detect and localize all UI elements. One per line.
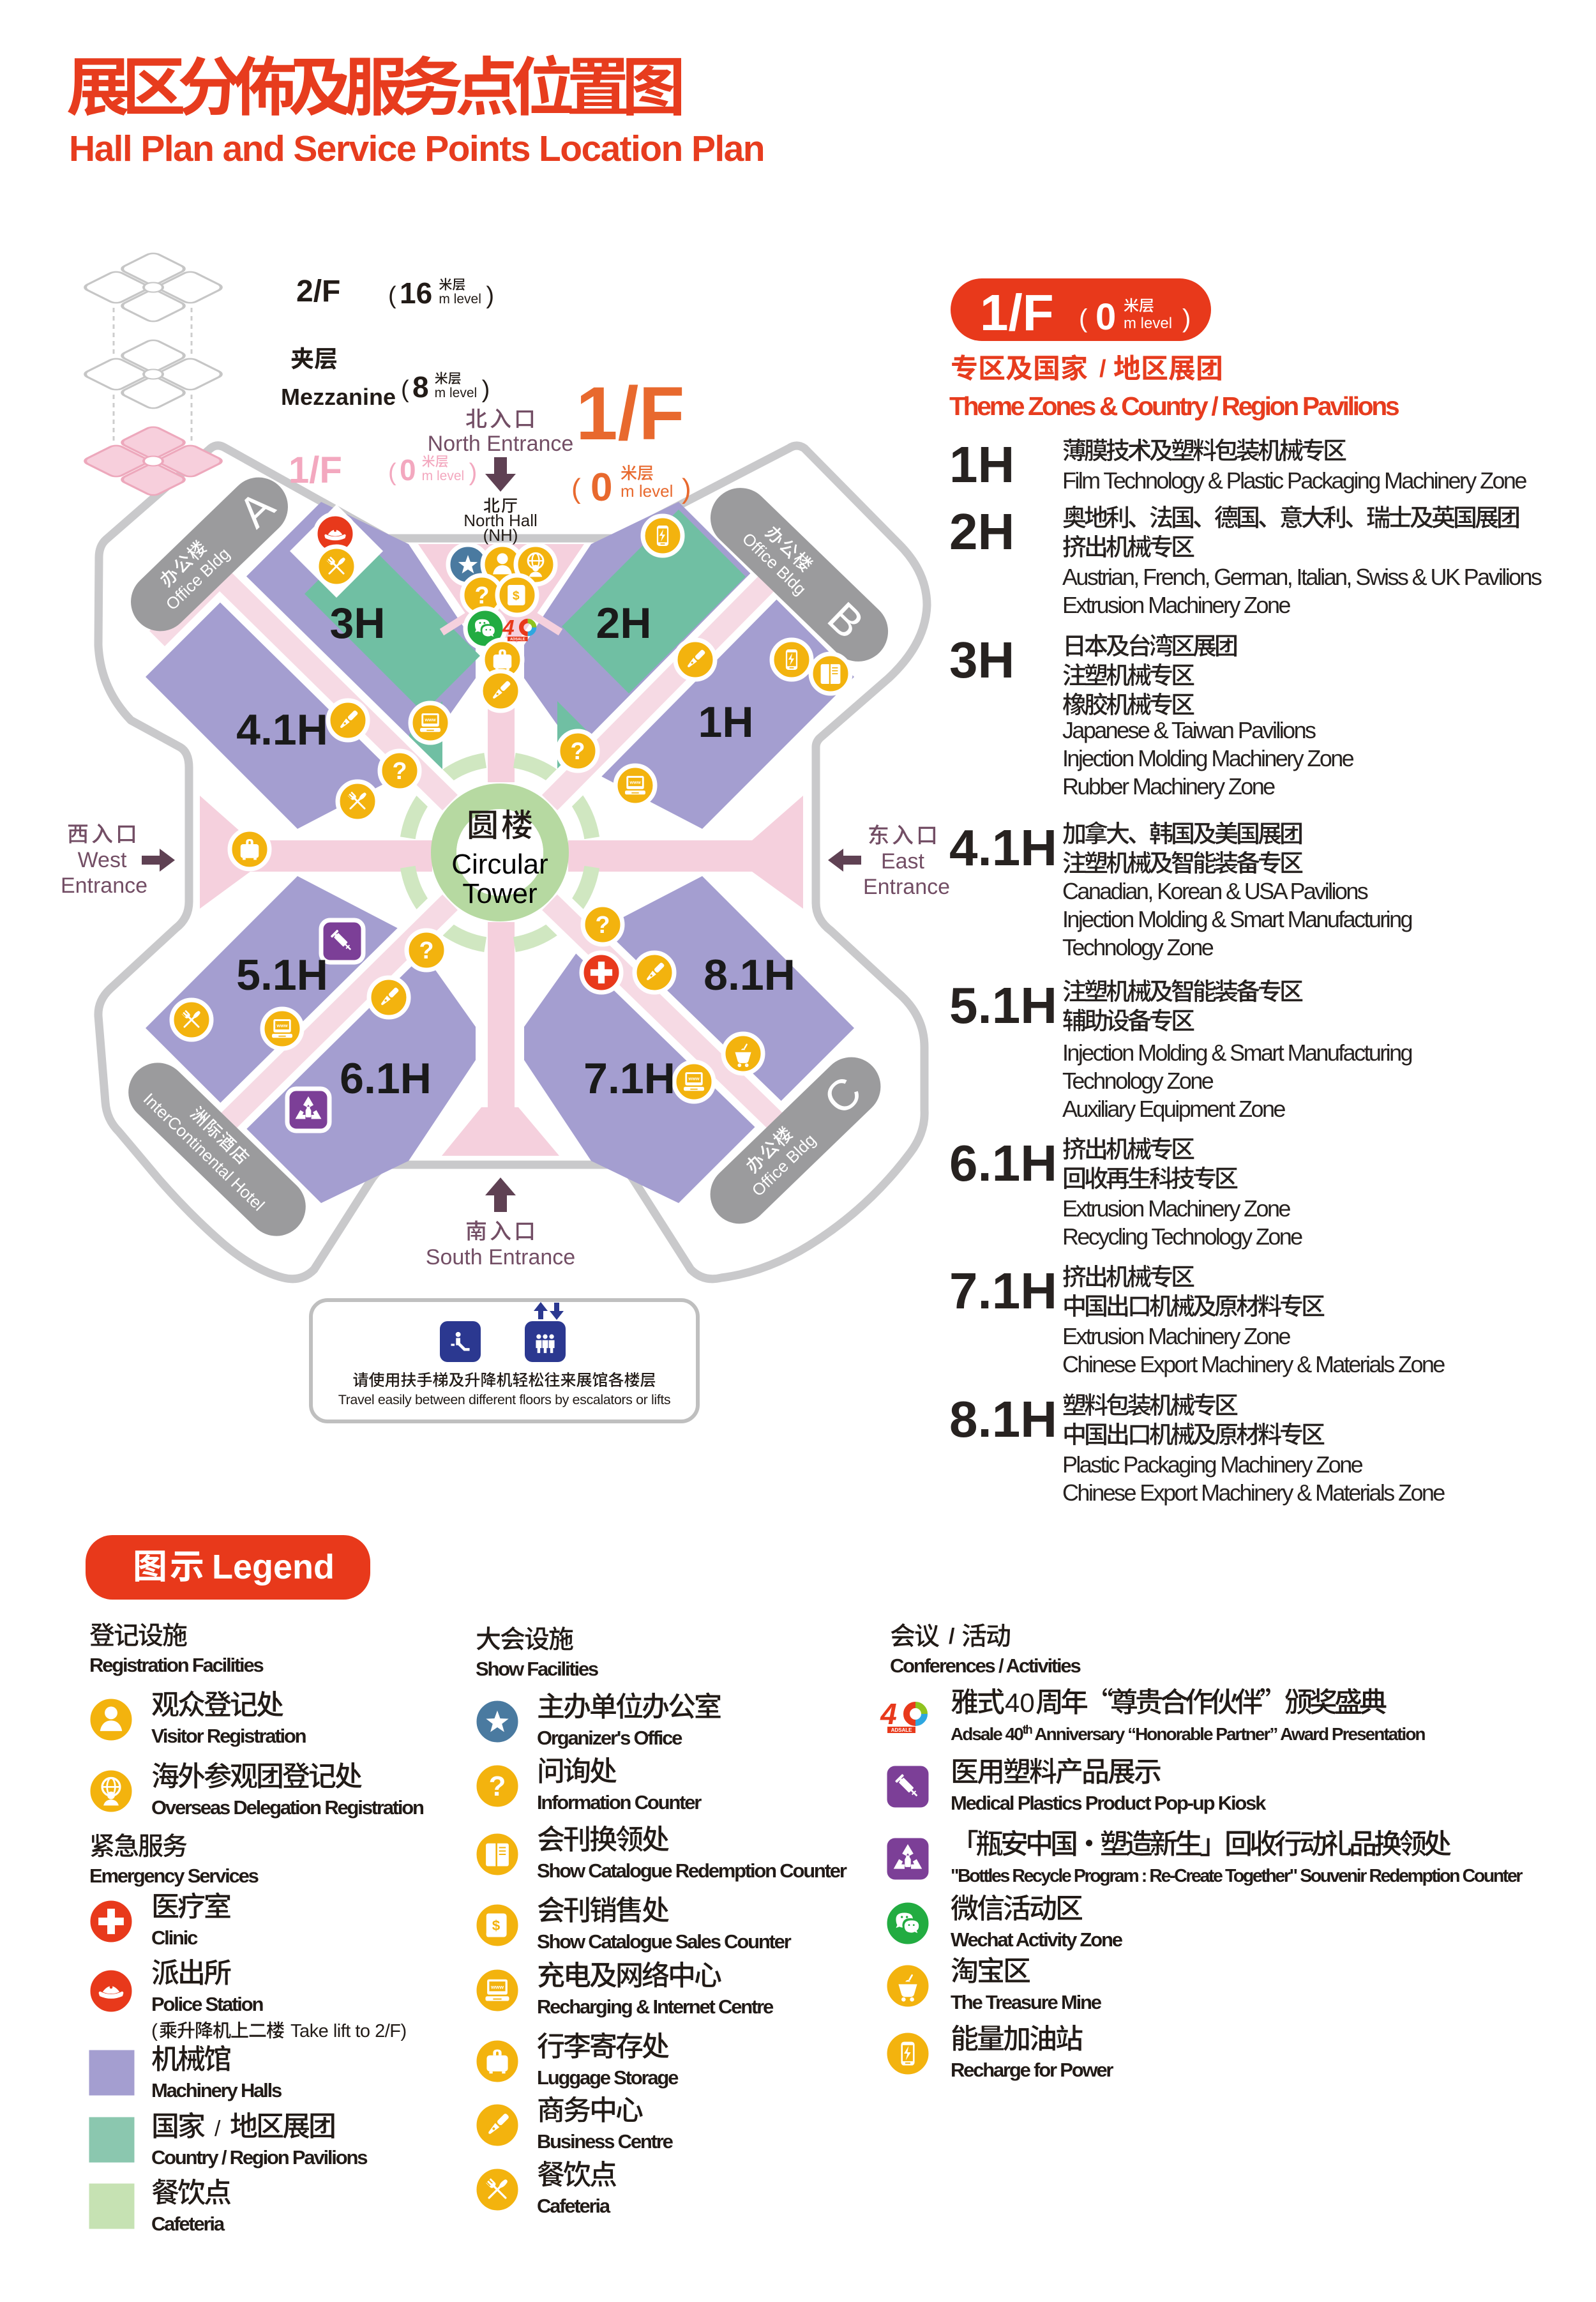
svg-text:Rubber Machinery Zone: Rubber Machinery Zone [1062, 773, 1275, 799]
svg-text:): ) [682, 473, 691, 504]
svg-text:Machinery Halls: Machinery Halls [151, 2079, 282, 2101]
svg-text:Take lift to 2/F): Take lift to 2/F) [290, 2021, 407, 2041]
svg-text:Police Station: Police Station [151, 1993, 263, 2015]
svg-text:8.1H: 8.1H [949, 1391, 1057, 1448]
svg-text:Cafeteria: Cafeteria [151, 2213, 225, 2235]
svg-text:Organizer's Office: Organizer's Office [537, 1727, 682, 1749]
svg-text:7.1H: 7.1H [949, 1262, 1057, 1319]
svg-text:/: / [949, 1624, 955, 1649]
svg-text:4.1H: 4.1H [949, 819, 1057, 876]
svg-text:0: 0 [1095, 296, 1116, 338]
svg-text:Injection Molding & Smart Manu: Injection Molding & Smart Manufacturing [1062, 1040, 1412, 1066]
svg-text:North Entrance: North Entrance [428, 432, 574, 456]
svg-text:Auxiliary Equipment Zone: Auxiliary Equipment Zone [1062, 1096, 1285, 1122]
svg-text:Country / Region Pavilions: Country / Region Pavilions [151, 2146, 367, 2169]
svg-text:m level: m level [621, 481, 673, 501]
svg-text:2/F: 2/F [296, 275, 340, 308]
svg-text:Adsale 40th Anniversary “Honor: Adsale 40th Anniversary “Honorable Partn… [951, 1723, 1425, 1744]
svg-text:Mezzanine: Mezzanine [281, 384, 396, 410]
svg-text:0: 0 [400, 453, 416, 487]
svg-text:Film Technology & Plastic Pack: Film Technology & Plastic Packaging Mach… [1062, 467, 1526, 494]
svg-text:Austrian, French, German, Ital: Austrian, French, German, Italian, Swiss… [1062, 564, 1542, 590]
svg-text:(NH): (NH) [483, 526, 518, 545]
svg-text:2H: 2H [596, 599, 652, 647]
svg-text:4: 4 [502, 616, 514, 640]
svg-text:m level: m level [1124, 315, 1172, 332]
svg-text:Entrance: Entrance [863, 875, 950, 899]
svg-text:/: / [1099, 356, 1106, 382]
svg-text:Chinese Export Machinery & Mat: Chinese Export Machinery & Materials Zon… [1062, 1351, 1445, 1377]
svg-text:(: ( [388, 282, 396, 309]
svg-text:Recharging & Internet Centre: Recharging & Internet Centre [537, 1995, 774, 2018]
svg-text:4: 4 [880, 1697, 897, 1730]
svg-text:7.1H: 7.1H [583, 1054, 675, 1103]
svg-text:(: ( [571, 473, 581, 504]
svg-text:Extrusion Machinery Zone: Extrusion Machinery Zone [1062, 1323, 1290, 1349]
svg-text:Theme Zones & Country / Region: Theme Zones & Country / Region Pavilions [949, 391, 1399, 421]
svg-text:West: West [78, 848, 127, 872]
svg-text:): ) [469, 459, 478, 486]
svg-text:Plastic Packaging Machinery Zo: Plastic Packaging Machinery Zone [1062, 1451, 1363, 1478]
svg-text:3H: 3H [330, 599, 386, 647]
svg-text:Visitor Registration: Visitor Registration [151, 1725, 306, 1747]
svg-text:Travel easily between differen: Travel easily between different floors b… [338, 1392, 671, 1407]
svg-text:1/F: 1/F [289, 450, 342, 491]
svg-text:Hall Plan and Service Points L: Hall Plan and Service Points Location Pl… [69, 128, 764, 169]
svg-text:Extrusion Machinery Zone: Extrusion Machinery Zone [1062, 1195, 1290, 1222]
svg-text:Injection Molding Machinery Zo: Injection Molding Machinery Zone [1062, 745, 1354, 771]
svg-text:ADSALE: ADSALE [510, 638, 525, 642]
svg-text:Cafeteria: Cafeteria [537, 2195, 611, 2217]
svg-text:4.1H: 4.1H [236, 706, 328, 754]
svg-text:East: East [881, 849, 925, 874]
svg-text:Technology Zone: Technology Zone [1062, 934, 1214, 960]
svg-text:): ) [486, 282, 494, 309]
svg-text:m level: m level [439, 292, 481, 307]
svg-text:Business Centre: Business Centre [537, 2130, 674, 2153]
svg-text:Show Facilities: Show Facilities [476, 1658, 598, 1680]
svg-text:1H: 1H [949, 436, 1014, 493]
svg-text:The Treasure Mine: The Treasure Mine [951, 1991, 1102, 2013]
svg-text:(: ( [151, 2020, 158, 2041]
svg-text:Emergency Services: Emergency Services [89, 1865, 259, 1887]
svg-text:South Entrance: South Entrance [426, 1245, 575, 1269]
svg-text:/: / [215, 2117, 221, 2141]
svg-text:"Bottles Recycle Program : Re-: "Bottles Recycle Program : Re-Create Tog… [951, 1866, 1523, 1886]
svg-text:(: ( [1079, 305, 1088, 333]
svg-text:Registration Facilities: Registration Facilities [89, 1654, 263, 1676]
svg-text:(: ( [388, 459, 396, 486]
svg-text:Tower: Tower [462, 878, 537, 909]
svg-text:m level: m level [422, 469, 465, 483]
svg-text:Show Catalogue Sales Counter: Show Catalogue Sales Counter [537, 1930, 792, 1953]
svg-text:Recharge for Power: Recharge for Power [951, 2059, 1113, 2081]
svg-text:5.1H: 5.1H [236, 951, 328, 999]
svg-text:Medical Plastics Product Pop-u: Medical Plastics Product Pop-up Kiosk [951, 1792, 1267, 1814]
svg-text:): ) [482, 376, 490, 403]
svg-text:6.1H: 6.1H [949, 1135, 1057, 1192]
svg-text:Wechat Activity Zone: Wechat Activity Zone [951, 1928, 1123, 1951]
svg-text:40: 40 [1005, 1688, 1035, 1718]
svg-text:): ) [1182, 305, 1191, 333]
svg-text:Clinic: Clinic [151, 1927, 198, 1949]
svg-text:6.1H: 6.1H [340, 1054, 432, 1103]
svg-text:8.1H: 8.1H [704, 951, 795, 999]
svg-text:(: ( [401, 376, 409, 403]
svg-text:Chinese Export Machinery & Mat: Chinese Export Machinery & Materials Zon… [1062, 1480, 1445, 1506]
svg-text:8: 8 [412, 370, 429, 404]
svg-text:Legend: Legend [212, 1548, 335, 1586]
svg-text:1H: 1H [698, 698, 754, 746]
svg-text:Injection Molding & Smart Manu: Injection Molding & Smart Manufacturing [1062, 906, 1412, 932]
svg-text:Japanese & Taiwan Pavilions: Japanese & Taiwan Pavilions [1062, 717, 1316, 743]
svg-text:5.1H: 5.1H [949, 977, 1057, 1034]
svg-text:Circular: Circular [451, 849, 548, 880]
svg-text:1/F: 1/F [576, 372, 685, 456]
svg-text:Overseas Delegation Registrati: Overseas Delegation Registration [151, 1796, 424, 1819]
svg-text:Canadian, Korean & USA Pavilio: Canadian, Korean & USA Pavilions [1062, 878, 1368, 904]
svg-text:16: 16 [400, 276, 432, 310]
svg-text:0: 0 [591, 466, 612, 510]
svg-text:Technology Zone: Technology Zone [1062, 1068, 1214, 1094]
svg-text:m level: m level [435, 386, 478, 400]
svg-text:3H: 3H [949, 632, 1014, 688]
svg-text:Conferences / Activities: Conferences / Activities [890, 1655, 1080, 1677]
svg-text:1/F: 1/F [980, 284, 1054, 341]
svg-text:ADSALE: ADSALE [891, 1727, 913, 1733]
svg-text:Luggage Storage: Luggage Storage [537, 2066, 679, 2089]
svg-text:Information Counter: Information Counter [537, 1791, 702, 1814]
svg-text:2H: 2H [949, 503, 1014, 560]
svg-text:Recycling Technology Zone: Recycling Technology Zone [1062, 1223, 1302, 1250]
svg-text:Entrance: Entrance [61, 874, 147, 898]
svg-text:Extrusion Machinery Zone: Extrusion Machinery Zone [1062, 592, 1290, 618]
svg-text:Show Catalogue Redemption Coun: Show Catalogue Redemption Counter [537, 1859, 847, 1882]
